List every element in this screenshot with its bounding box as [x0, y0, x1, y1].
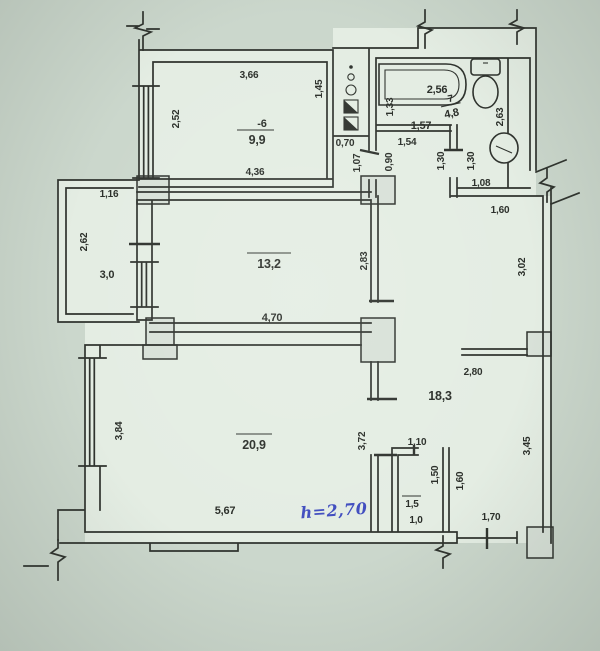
dim-room13-right: 2,83: [359, 251, 370, 270]
dim-hall-entry: 1,70: [482, 512, 501, 523]
room20-area: 20,9: [242, 438, 266, 452]
dim-closet-top: 1,10: [408, 437, 427, 448]
room6-area: 9,9: [249, 133, 266, 147]
dim-vestibule-top: 1,54: [398, 137, 417, 148]
room-fills: [58, 28, 551, 543]
dim-room6-bottom: 4,36: [246, 167, 265, 178]
dim-nook-height: 1,07: [352, 153, 363, 172]
dim-nook-width: 0,70: [336, 138, 355, 149]
dim-hall-closet-side: 1,60: [455, 471, 466, 490]
dim-room6-left: 2,52: [171, 109, 182, 128]
floor-plan-scan: 3,66 2,52 1,45 -6 9,9 4,36 0,70 1,07 1,5…: [0, 0, 600, 651]
toilet-icon: [471, 59, 500, 108]
dim-closet-inner: 1,50: [430, 465, 441, 484]
dim-bath-bottom: 1,08: [472, 178, 491, 189]
balcony-area: 3,0: [100, 269, 115, 281]
floor-plan-canvas: 3,66 2,52 1,45 -6 9,9 4,36 0,70 1,07 1,5…: [0, 0, 600, 651]
room6-number: -6: [257, 118, 266, 130]
dim-bath-right: 2,63: [495, 107, 506, 126]
hall-area: 18,3: [428, 389, 452, 403]
dim-bathtub: 2,56: [427, 84, 448, 96]
dim-balcony-top: 1,16: [100, 189, 119, 200]
dim-balcony-left: 2,62: [79, 232, 90, 251]
closet-area: 1,5: [405, 499, 419, 510]
dim-hall-right-lower: 3,45: [522, 436, 533, 455]
dim-bath-door-b: 1,30: [466, 151, 477, 170]
dim-vestibule-door: 0,90: [384, 152, 395, 171]
room13-area: 13,2: [257, 257, 281, 271]
dim-room13-bottom: 4,70: [262, 312, 283, 324]
dim-bath-left: 1,33: [385, 97, 396, 116]
dim-room20-left: 3,84: [114, 421, 125, 440]
dim-hall-right-upper: 3,02: [517, 257, 528, 276]
dim-room6-top: 3,66: [240, 70, 259, 81]
dim-bath-inner: 1,57: [411, 120, 432, 132]
dim-room20-bottom: 5,67: [215, 505, 236, 517]
sink-icon: [490, 133, 518, 163]
dim-room6-right: 1,45: [314, 79, 325, 98]
dim-hall-width: 2,80: [464, 367, 483, 378]
dim-room20-right: 3,72: [357, 431, 368, 450]
closet-area-lower: 1,0: [409, 515, 423, 526]
dim-bath-door-a: 1,30: [436, 151, 447, 170]
dim-hall-top: 1,60: [491, 205, 510, 216]
